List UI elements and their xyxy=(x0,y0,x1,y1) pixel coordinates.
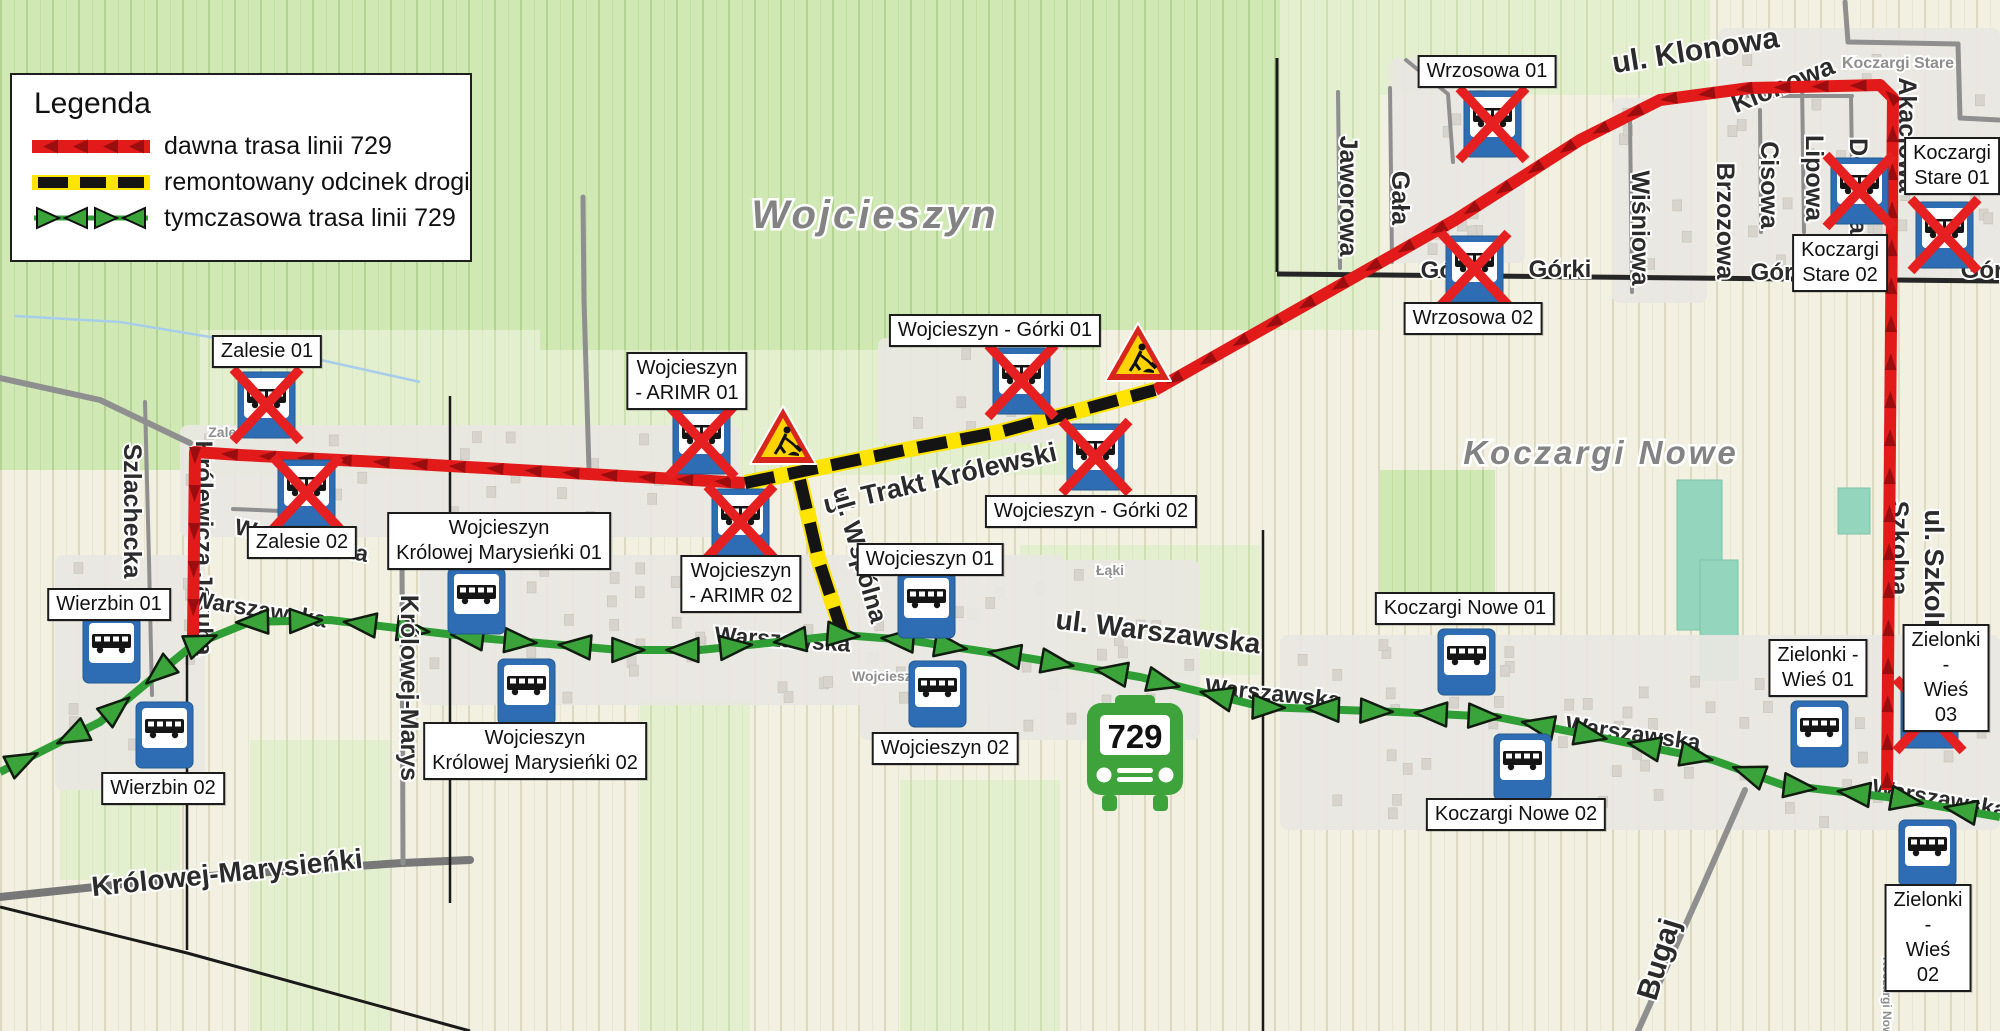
legend-item-label: dawna trasa linii 729 xyxy=(164,132,392,161)
minor-map-label: Łąki xyxy=(1096,562,1124,578)
bus-stop-icon xyxy=(1899,820,1956,886)
legend-item-renovated-section: remontowany odcinek drogi xyxy=(30,167,456,197)
closed-bus-stop-icon xyxy=(707,486,774,558)
bus-stop-icon xyxy=(498,659,555,725)
bus-stop-icon xyxy=(83,617,140,683)
closed-bus-stop-icon xyxy=(273,457,340,529)
street-label: Cisowa xyxy=(1755,141,1783,230)
closed-bus-stop-icon xyxy=(668,405,735,477)
street-label: Górki xyxy=(1529,256,1592,283)
bus-stop-icon xyxy=(1791,701,1848,767)
street-label: Lipowa xyxy=(1800,135,1828,222)
place-label: Wojcieszyn xyxy=(751,193,998,237)
closed-bus-stop-icon xyxy=(1441,233,1508,305)
street-label: Jaworowa xyxy=(1334,136,1362,258)
bus-729-number: 729 xyxy=(1107,718,1162,755)
street-label: Brzozowa xyxy=(1711,163,1739,281)
street-label: Gała xyxy=(1386,171,1414,226)
closed-bus-stop-icon xyxy=(1896,679,1963,751)
legend-item-old-route: dawna trasa linii 729 xyxy=(30,131,456,161)
street-label: Szlachecka xyxy=(118,444,146,580)
street-label: Królowej-Marys xyxy=(395,595,423,781)
legend-item-temporary-route: tymczasowa trasa linii 729 xyxy=(30,203,456,233)
closed-bus-stop-icon xyxy=(1062,421,1129,493)
place-label: Koczargi Nowe xyxy=(1463,434,1739,471)
legend-title: Legenda xyxy=(34,87,456,121)
closed-bus-stop-icon xyxy=(988,345,1055,417)
bus-stop-icon xyxy=(136,702,193,768)
legend-item-label: remontowany odcinek drogi xyxy=(164,168,470,197)
street-label: ul. Szkolna xyxy=(1919,509,1949,651)
street-label: Górki xyxy=(1751,259,1814,286)
minor-map-label: Koczargi Stare xyxy=(1842,55,1954,72)
renovated-section-swatch xyxy=(30,167,152,197)
closed-bus-stop-icon xyxy=(233,369,300,441)
street-label: Wiśniowa xyxy=(1626,170,1654,286)
temporary-route-swatch xyxy=(30,203,152,233)
legend: Legenda dawna trasa linii 729 remontowan… xyxy=(10,73,472,262)
closed-bus-stop-icon xyxy=(1826,155,1893,227)
bus-stop-icon xyxy=(909,661,966,727)
legend-item-label: tymczasowa trasa linii 729 xyxy=(164,204,456,233)
closed-bus-stop-icon xyxy=(1911,199,1978,271)
map-canvas: KlonowaDębowaAkacjowaSzkolnaKrólewicza J… xyxy=(0,0,2000,1031)
minor-map-label: Koczargi Nowe xyxy=(1880,957,1894,1031)
bus-stop-icon xyxy=(1438,629,1495,695)
bus-stop-icon xyxy=(1494,734,1551,800)
bus-729-icon: 729 xyxy=(1087,695,1183,811)
old-route-line-swatch xyxy=(30,131,152,161)
bus-stop-icon xyxy=(448,568,505,634)
closed-bus-stop-icon xyxy=(1459,88,1526,160)
bus-stop-icon xyxy=(898,572,955,638)
